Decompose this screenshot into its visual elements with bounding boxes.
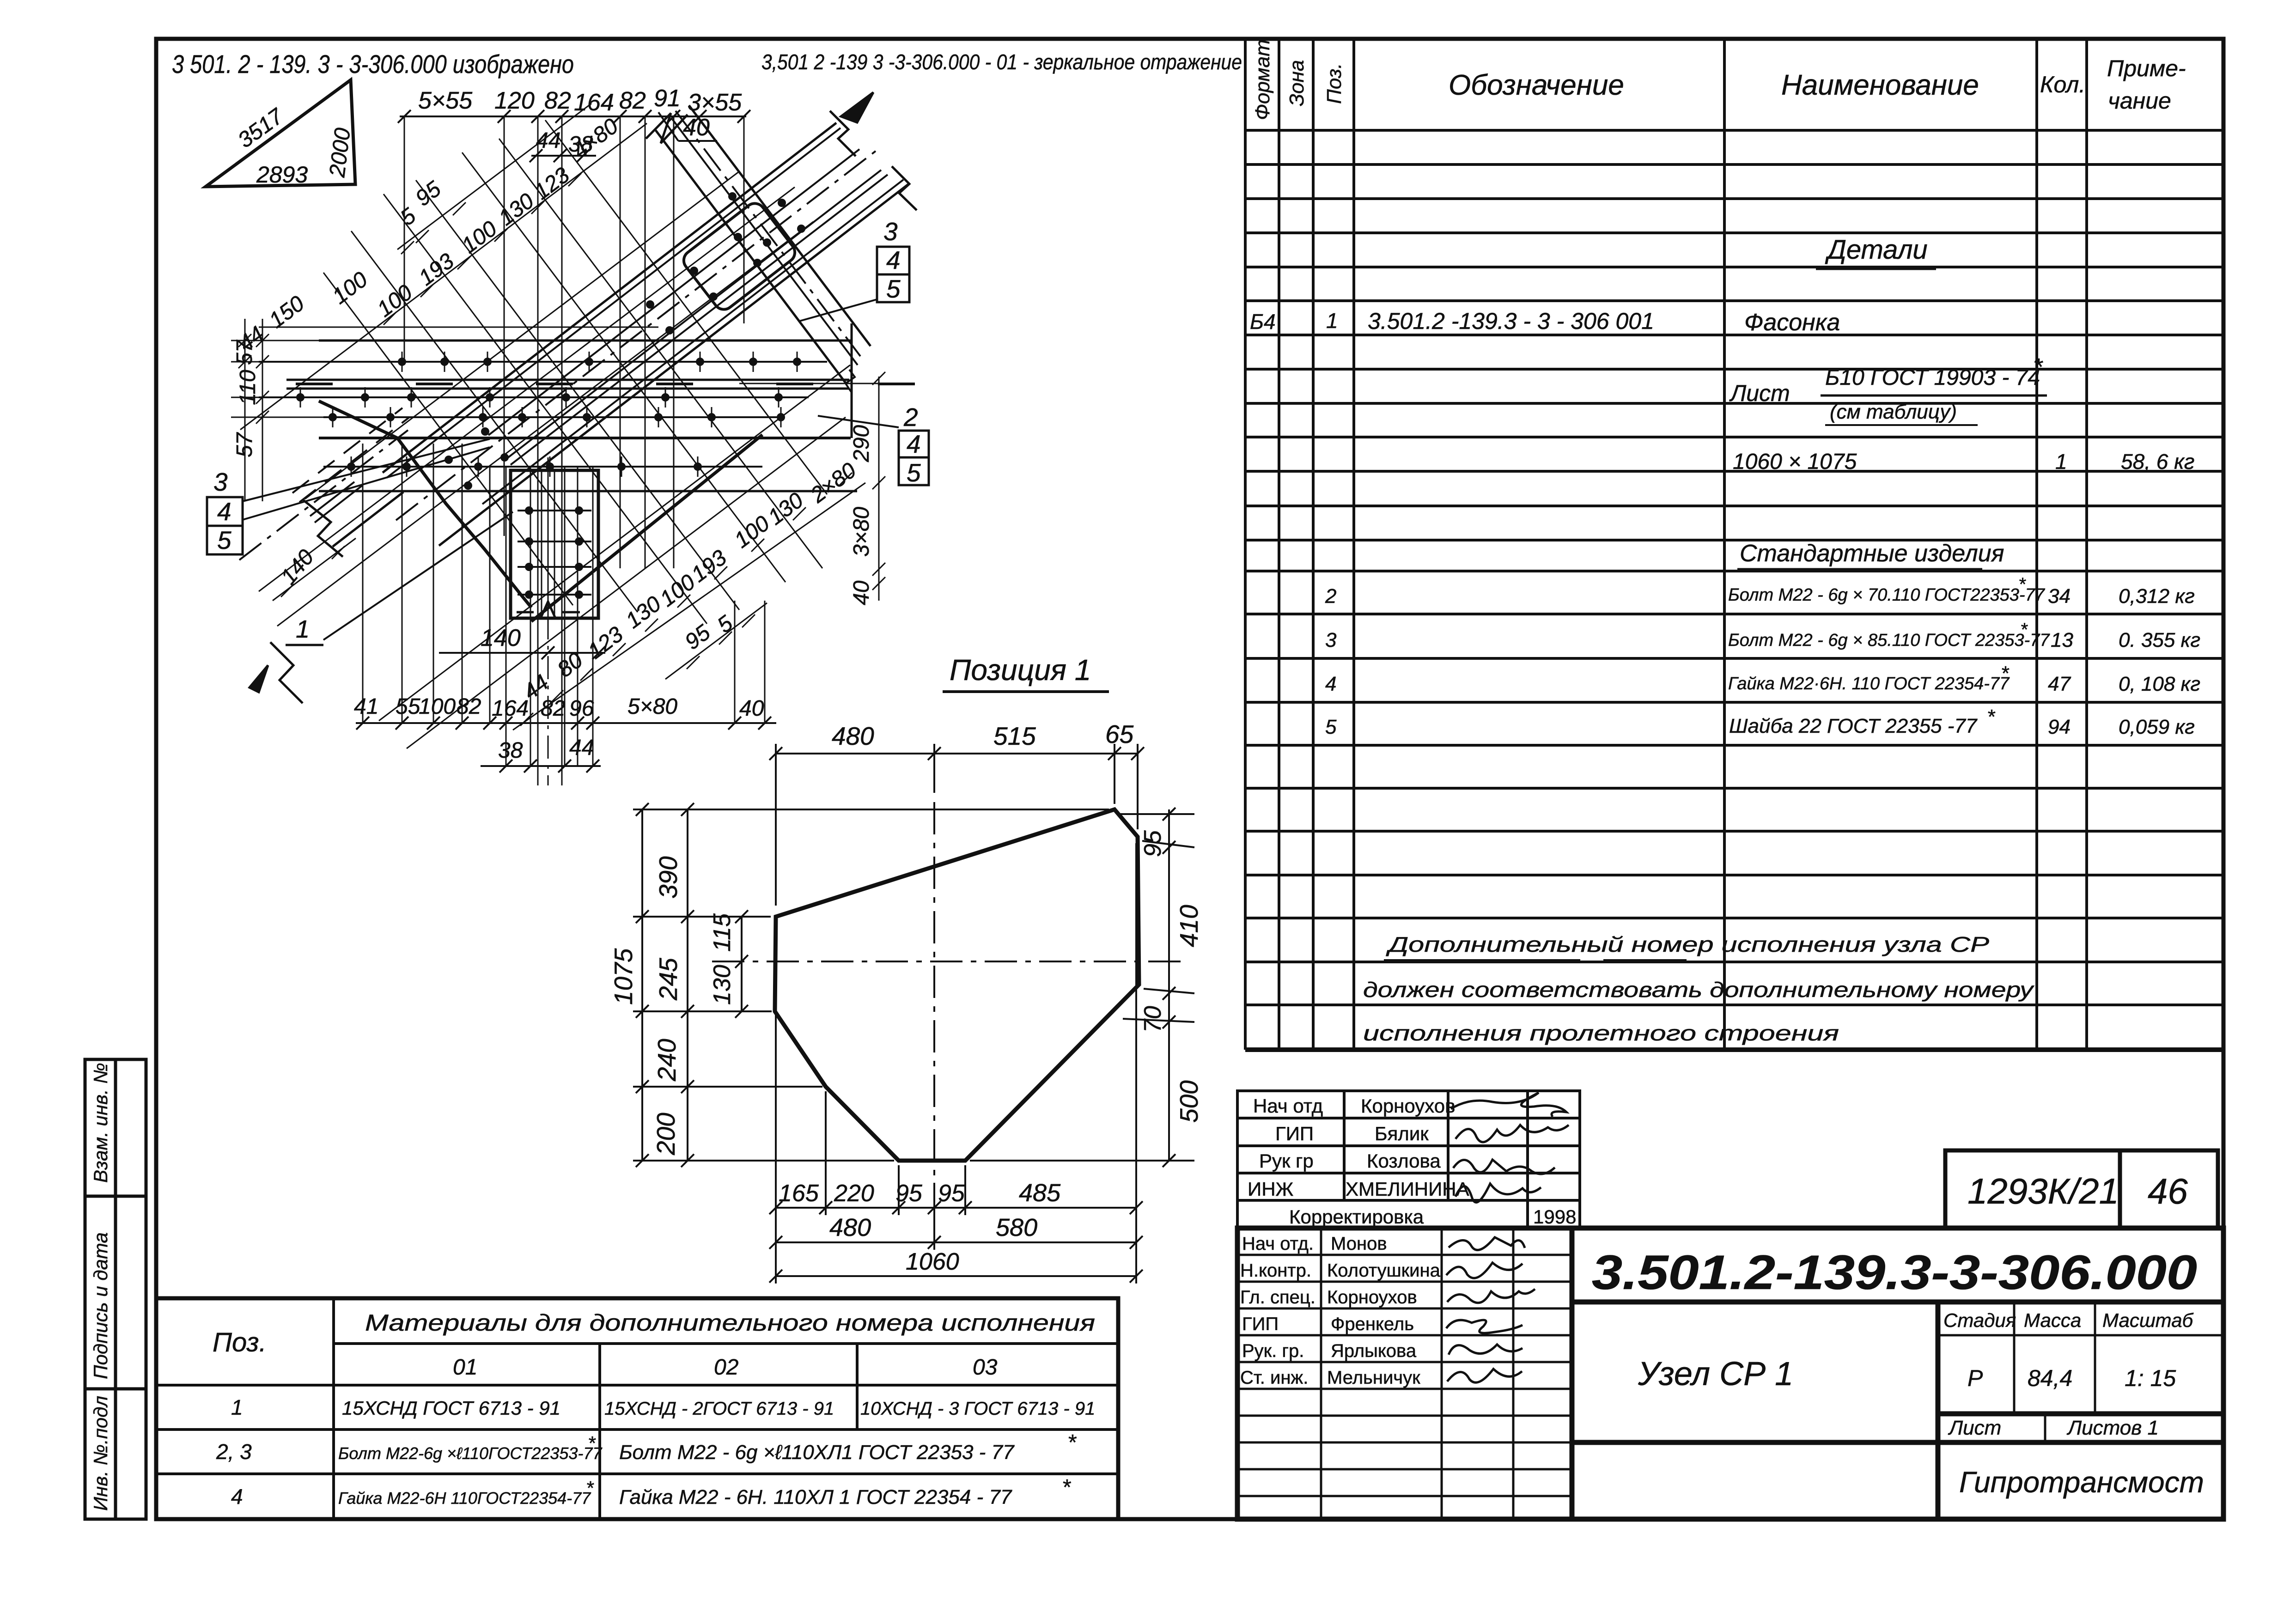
svg-text:Гайка М22·6Н. 110 ГОСТ 22354-7: Гайка М22·6Н. 110 ГОСТ 22354-77 xyxy=(1728,674,2010,693)
svg-text:Обозначение: Обозначение xyxy=(1449,69,1624,101)
svg-text:Стадия: Стадия xyxy=(1943,1309,2016,1331)
svg-text:3.501.2 -139.3 - 3 - 306 001: 3.501.2 -139.3 - 3 - 306 001 xyxy=(1368,308,1654,334)
svg-text:94: 94 xyxy=(2048,716,2071,738)
svg-text:1060: 1060 xyxy=(906,1248,959,1275)
svg-text:3×80: 3×80 xyxy=(849,507,874,557)
svg-text:34: 34 xyxy=(2048,585,2071,608)
svg-text:Корноухов: Корноухов xyxy=(1327,1287,1417,1308)
svg-text:140: 140 xyxy=(481,625,521,651)
svg-text:Лист: Лист xyxy=(1729,380,1790,406)
svg-text:515: 515 xyxy=(993,722,1036,750)
svg-text:1: 15: 1: 15 xyxy=(2125,1365,2176,1391)
svg-text:44: 44 xyxy=(569,736,594,760)
svg-text:Поз.: Поз. xyxy=(213,1327,267,1357)
svg-text:410: 410 xyxy=(1175,905,1203,947)
svg-text:57: 57 xyxy=(232,432,257,457)
svg-text:40: 40 xyxy=(683,114,710,141)
svg-text:Материалы для дополнит: Материалы для дополнительного номера исп… xyxy=(365,1310,1095,1336)
svg-text:1: 1 xyxy=(2055,450,2067,474)
svg-text:Шайба 22 ГОСТ 22355 -77: Шайба 22 ГОСТ 22355 -77 xyxy=(1729,715,1978,737)
svg-text:10ХСНД - 3 ГОСТ 6713 - 91: 10ХСНД - 3 ГОСТ 6713 - 91 xyxy=(860,1399,1095,1419)
svg-text:3 501. 2 - 139. 3 - 3-306.000: 3 501. 2 - 139. 3 - 3-306.000 изображено xyxy=(172,49,574,79)
svg-text:Листов 1: Листов 1 xyxy=(2066,1417,2159,1439)
svg-text:290: 290 xyxy=(849,425,874,462)
svg-text:40: 40 xyxy=(849,580,874,605)
svg-text:Мельничук: Мельничук xyxy=(1327,1368,1420,1388)
svg-text:Стандартные изделия: Стандартные изделия xyxy=(1740,540,2004,567)
svg-text:2: 2 xyxy=(903,403,918,432)
svg-text:Подпись и дата: Подпись и дата xyxy=(90,1232,111,1379)
svg-text:65: 65 xyxy=(1105,720,1134,748)
svg-text:0, 108 кг: 0, 108 кг xyxy=(2119,673,2200,695)
svg-text:ГИП: ГИП xyxy=(1275,1123,1314,1144)
svg-text:4: 4 xyxy=(217,497,231,526)
svg-text:*: * xyxy=(2001,662,2010,685)
svg-text:Формат: Формат xyxy=(1251,39,1274,120)
svg-text:Гл. спец.: Гл. спец. xyxy=(1240,1287,1315,1308)
svg-text:38: 38 xyxy=(498,738,523,763)
svg-text:Болт М22-6g ×ℓ110ГОСТ22353-77: Болт М22-6g ×ℓ110ГОСТ22353-77 xyxy=(338,1444,603,1463)
svg-text:исполнения пролетного: исполнения пролетного строения xyxy=(1363,1021,1839,1045)
svg-text:Зона: Зона xyxy=(1285,60,1308,106)
svg-text:95: 95 xyxy=(938,1180,965,1207)
svg-text:1293К/21: 1293К/21 xyxy=(1967,1171,2119,1211)
svg-text:Узел СР 1: Узел СР 1 xyxy=(1638,1356,1793,1393)
svg-text:Ст. инж.: Ст. инж. xyxy=(1240,1368,1308,1388)
svg-text:1075: 1075 xyxy=(609,948,638,1005)
svg-text:*: * xyxy=(1067,1430,1077,1455)
svg-text:1: 1 xyxy=(1326,309,1338,333)
svg-text:4: 4 xyxy=(907,430,921,458)
svg-text:5×80: 5×80 xyxy=(627,694,677,719)
svg-text:5: 5 xyxy=(217,526,231,554)
svg-text:Б4: Б4 xyxy=(1250,310,1276,334)
svg-text:Монов: Монов xyxy=(1331,1234,1387,1254)
svg-text:Детали: Детали xyxy=(1825,235,1928,265)
svg-text:44: 44 xyxy=(536,128,560,153)
svg-text:*: * xyxy=(1987,706,1996,728)
svg-text:200: 200 xyxy=(652,1113,680,1156)
svg-text:Болт М22 - 6g × 70.110 ГОСТ223: Болт М22 - 6g × 70.110 ГОСТ22353-77 xyxy=(1728,585,2046,605)
svg-text:1: 1 xyxy=(296,615,310,643)
svg-text:ХМЕЛИНИНА: ХМЕЛИНИНА xyxy=(1346,1178,1469,1200)
svg-text:485: 485 xyxy=(1019,1179,1061,1207)
svg-text:82: 82 xyxy=(541,696,565,721)
svg-text:Позиция 1: Позиция 1 xyxy=(950,653,1091,687)
svg-text:1: 1 xyxy=(231,1395,243,1419)
svg-text:Поз.: Поз. xyxy=(1323,63,1346,104)
svg-text:0,059 кг: 0,059 кг xyxy=(2119,716,2195,738)
svg-text:*: * xyxy=(586,1477,594,1499)
svg-text:Фасонка: Фасонка xyxy=(1744,309,1840,336)
svg-text:02: 02 xyxy=(714,1355,738,1380)
svg-text:Гипротрансмост: Гипротрансмост xyxy=(1959,1466,2204,1499)
svg-text:95: 95 xyxy=(895,1180,923,1207)
svg-text:82: 82 xyxy=(544,87,571,114)
svg-text:115: 115 xyxy=(709,913,736,952)
svg-text:95: 95 xyxy=(1139,830,1166,857)
svg-text:82: 82 xyxy=(619,87,646,114)
svg-text:01: 01 xyxy=(453,1355,477,1380)
svg-text:5: 5 xyxy=(1325,716,1337,738)
svg-text:Б10 ГОСТ 19903 - 74: Б10 ГОСТ 19903 - 74 xyxy=(1825,365,2040,390)
svg-text:*: * xyxy=(2018,574,2026,595)
svg-text:5×55: 5×55 xyxy=(418,87,473,114)
svg-text:96: 96 xyxy=(569,696,594,721)
svg-text:46: 46 xyxy=(2148,1171,2188,1211)
svg-text:3: 3 xyxy=(213,468,228,496)
svg-text:Масса: Масса xyxy=(2024,1309,2081,1331)
svg-text:(см таблицу): (см таблицу) xyxy=(1830,401,1957,423)
svg-text:должен соответствовать до: должен соответствовать дополнительному н… xyxy=(1363,978,2035,1002)
svg-text:Корректировка: Корректировка xyxy=(1289,1206,1424,1228)
svg-text:130: 130 xyxy=(709,965,736,1005)
svg-text:390: 390 xyxy=(654,856,682,899)
svg-text:480: 480 xyxy=(829,1214,871,1241)
svg-text:ГИП: ГИП xyxy=(1242,1314,1279,1334)
svg-text:4: 4 xyxy=(886,246,901,274)
svg-text:Болт М22 - 6g ×ℓ110ХЛ1 ГОСТ: Болт М22 - 6g ×ℓ110ХЛ1 ГОСТ 22353 - 77 xyxy=(619,1441,1015,1464)
svg-text:0. 355 кг: 0. 355 кг xyxy=(2119,629,2200,651)
svg-text:40: 40 xyxy=(739,696,764,721)
svg-text:580: 580 xyxy=(996,1214,1037,1241)
svg-text:84,4: 84,4 xyxy=(2028,1365,2072,1391)
svg-text:Рук. гр.: Рук. гр. xyxy=(1242,1341,1304,1361)
svg-text:чание: чание xyxy=(2108,88,2171,114)
svg-text:Нач отд.: Нач отд. xyxy=(1242,1234,1314,1254)
svg-text:Инв. №.подл: Инв. №.подл xyxy=(90,1396,111,1511)
svg-text:Корноухов: Корноухов xyxy=(1361,1095,1455,1117)
svg-text:Р: Р xyxy=(1967,1365,1983,1391)
svg-text:03: 03 xyxy=(973,1355,998,1380)
svg-text:240: 240 xyxy=(652,1039,681,1082)
svg-text:41: 41 xyxy=(354,694,378,719)
svg-text:Масштаб: Масштаб xyxy=(2102,1309,2194,1331)
svg-text:Болт М22 - 6g × 85.110 ГОСТ 22: Болт М22 - 6g × 85.110 ГОСТ 22353-77 xyxy=(1728,631,2050,650)
svg-text:Нач отд: Нач отд xyxy=(1253,1095,1323,1117)
svg-text:5: 5 xyxy=(907,458,921,487)
svg-text:245: 245 xyxy=(654,958,682,1001)
svg-text:*: * xyxy=(588,1432,596,1454)
svg-text:91: 91 xyxy=(654,85,681,112)
svg-text:Колотушкина: Колотушкина xyxy=(1327,1260,1441,1281)
svg-text:Рук гр: Рук гр xyxy=(1259,1150,1314,1172)
svg-text:Бялик: Бялик xyxy=(1375,1123,1429,1144)
svg-text:3×55: 3×55 xyxy=(688,89,742,116)
svg-text:3,501 2 -139 3 -3-306.000 - 01: 3,501 2 -139 3 -3-306.000 - 01 - зеркаль… xyxy=(761,50,1242,74)
svg-text:Гайка М22 - 6Н. 110ХЛ 1 ГОСТ: Гайка М22 - 6Н. 110ХЛ 1 ГОСТ 22354 - 77 xyxy=(619,1486,1012,1508)
svg-text:100: 100 xyxy=(419,694,456,719)
svg-text:4: 4 xyxy=(1325,673,1336,695)
svg-text:Ярлыкова: Ярлыкова xyxy=(1331,1341,1417,1361)
svg-text:4: 4 xyxy=(231,1484,243,1508)
svg-text:5: 5 xyxy=(886,274,901,303)
svg-text:57: 57 xyxy=(232,339,257,365)
svg-text:3: 3 xyxy=(883,217,898,246)
svg-text:110: 110 xyxy=(236,370,260,405)
svg-text:120: 120 xyxy=(494,87,535,114)
svg-text:Приме-: Приме- xyxy=(2107,55,2186,81)
svg-text:47: 47 xyxy=(2048,673,2071,695)
svg-text:Дополнительный номер испол: Дополнительный номер исполнения узла СР xyxy=(1385,932,1989,956)
svg-text:*: * xyxy=(2033,354,2043,381)
svg-text:480: 480 xyxy=(832,722,874,750)
svg-text:Френкель: Френкель xyxy=(1331,1314,1414,1334)
svg-text:58, 6 кг: 58, 6 кг xyxy=(2121,450,2195,474)
svg-text:Гайка М22-6Н 110ГОСТ22354-77: Гайка М22-6Н 110ГОСТ22354-77 xyxy=(338,1489,591,1508)
svg-text:Кол.: Кол. xyxy=(2040,72,2085,97)
svg-text:2: 2 xyxy=(1325,585,1336,608)
svg-text:0,312 кг: 0,312 кг xyxy=(2119,585,2195,608)
svg-text:*: * xyxy=(1062,1475,1071,1500)
svg-text:3: 3 xyxy=(1325,629,1337,651)
svg-text:1998: 1998 xyxy=(1533,1206,1576,1228)
svg-text:Взам. инв. №: Взам. инв. № xyxy=(90,1063,111,1183)
svg-text:15ХСНД ГОСТ 6713 - 91: 15ХСНД ГОСТ 6713 - 91 xyxy=(342,1397,560,1419)
svg-text:3.501.2-139.3-3-306.000: 3.501.2-139.3-3-306.000 xyxy=(1592,1246,2197,1300)
svg-text:2, 3: 2, 3 xyxy=(216,1440,252,1464)
svg-text:500: 500 xyxy=(1175,1080,1203,1123)
svg-text:70: 70 xyxy=(1139,1006,1166,1033)
svg-text:220: 220 xyxy=(834,1180,874,1207)
svg-text:13: 13 xyxy=(2051,629,2073,651)
svg-text:*: * xyxy=(2020,620,2028,640)
svg-text:ИНЖ: ИНЖ xyxy=(1248,1178,1294,1200)
svg-text:2893: 2893 xyxy=(256,162,308,188)
svg-text:1060 × 1075: 1060 × 1075 xyxy=(1733,450,1857,474)
svg-text:Н.контр.: Н.контр. xyxy=(1240,1260,1311,1281)
svg-text:164: 164 xyxy=(492,696,529,721)
svg-text:15ХСНД - 2ГОСТ 6713 - 91: 15ХСНД - 2ГОСТ 6713 - 91 xyxy=(604,1399,834,1419)
svg-text:55: 55 xyxy=(396,694,420,719)
svg-text:Наименование: Наименование xyxy=(1781,69,1979,101)
svg-text:Лист: Лист xyxy=(1948,1417,2001,1439)
svg-text:Козлова: Козлова xyxy=(1367,1150,1441,1172)
svg-text:82: 82 xyxy=(457,694,481,719)
svg-text:165: 165 xyxy=(779,1180,819,1207)
